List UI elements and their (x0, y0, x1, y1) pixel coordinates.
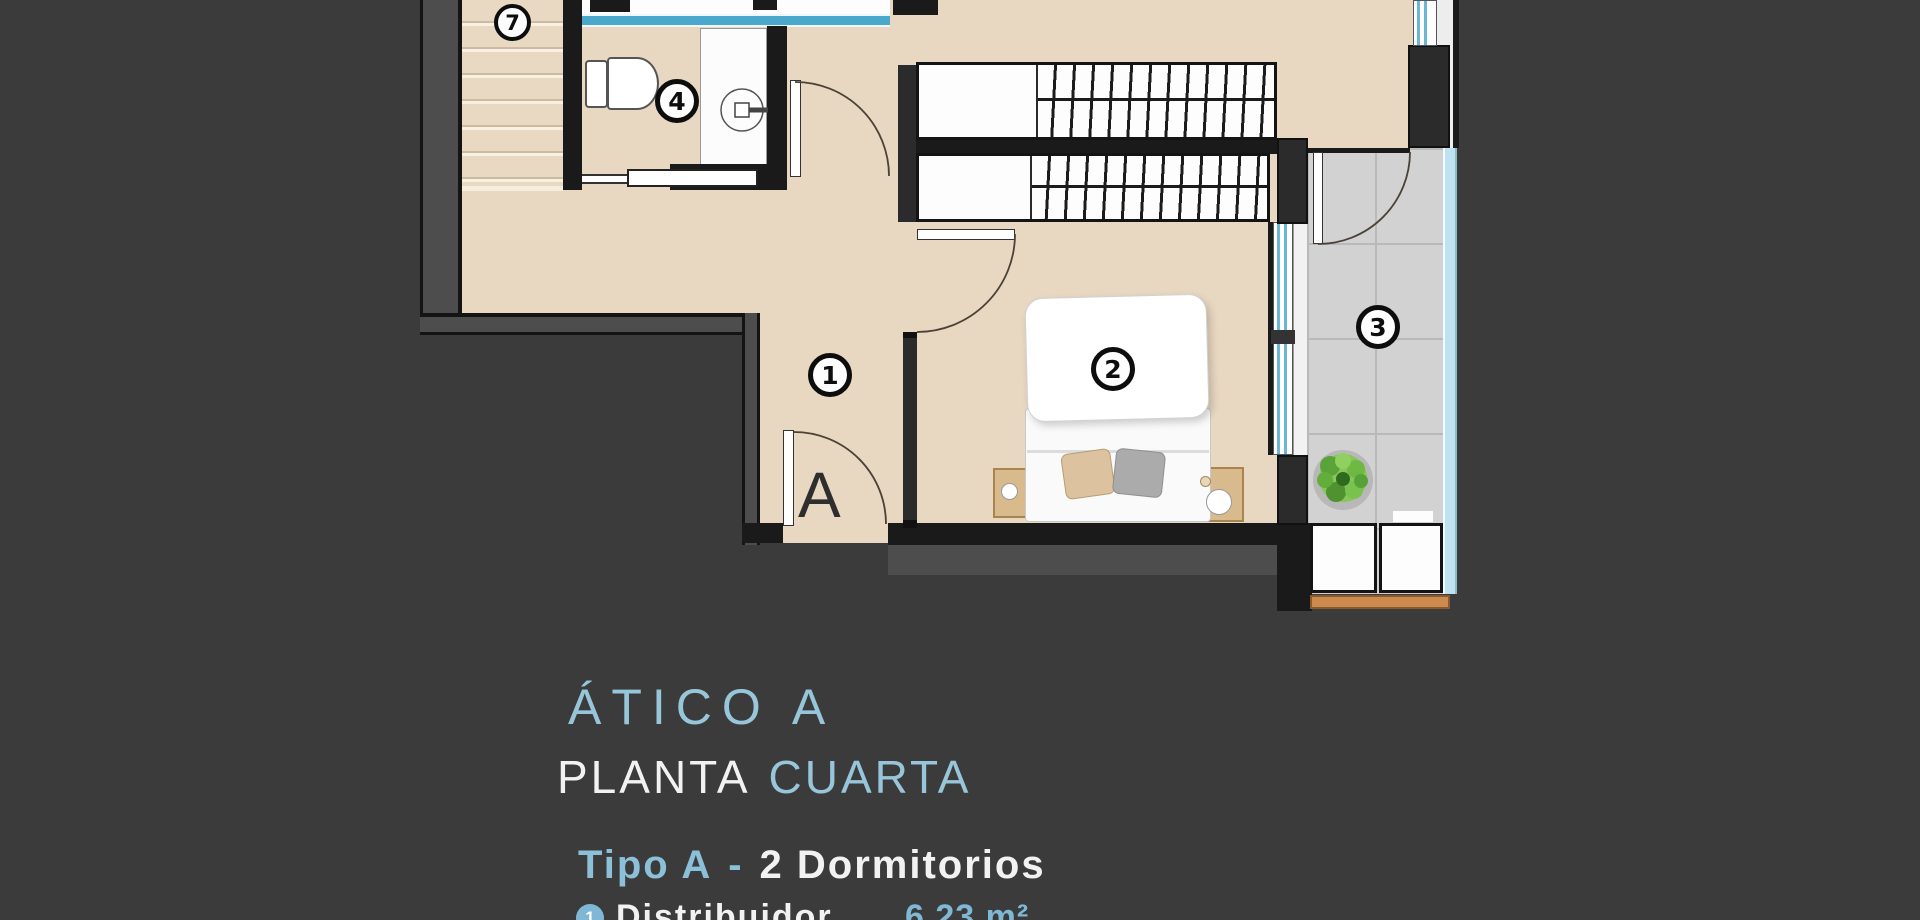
wardrobe-row-top (916, 62, 1277, 140)
legend-number-badge: 1 (576, 904, 604, 920)
wardrobe-left-pillar (898, 65, 916, 222)
floor-gap-below-wall (563, 188, 582, 315)
room-marker-number: 3 (1369, 313, 1386, 342)
page-title-text: ÁTICO A (568, 679, 835, 735)
type-label: Tipo A (578, 843, 712, 887)
terrace-top-pillar (1408, 45, 1450, 148)
floor-plan-page: 7 4 1 2 3 A ÁTICO A PLANTACUARTA Tipo A-… (0, 0, 1920, 920)
top-right-window (1413, 0, 1437, 46)
nightstand-cup (1200, 476, 1211, 487)
outer-wall-left (420, 0, 462, 335)
terrace-cabinet-left (1310, 523, 1377, 593)
bathroom-door-leaf (790, 80, 801, 177)
type-line: Tipo A-2 Dormitorios (578, 843, 1046, 888)
room-marker-number: 2 (1104, 355, 1121, 384)
bedroom-window-mullion (1271, 330, 1295, 344)
bottom-wall-outer-face (888, 545, 1308, 575)
outer-wall-bottom-left (420, 313, 760, 335)
bottom-wall-entry-left (742, 523, 783, 543)
toilet-cistern (585, 60, 608, 108)
room-marker-number: 7 (505, 11, 520, 35)
wardrobe-shelf (919, 156, 1032, 219)
room-marker-number: 4 (668, 87, 685, 116)
nightstand-lamp-right (1206, 489, 1232, 515)
terrace-threshold (1308, 148, 1410, 153)
terrace-notch (1393, 511, 1433, 522)
legend-row: 1 Distribuidor (576, 898, 833, 920)
bottom-wall-main (888, 523, 1308, 545)
terrace-alcove-floor (1273, 0, 1413, 148)
accent-pillow-gray (1112, 448, 1167, 499)
terrace-corner-wall (1277, 523, 1312, 611)
shower-tray (700, 28, 767, 168)
stairs-landing-edge (462, 186, 563, 191)
wardrobe-row-bottom (916, 153, 1270, 222)
wardrobe-hanger-rail (1038, 65, 1274, 137)
wall-stub-top-3 (893, 0, 938, 15)
room-marker-number: 1 (821, 361, 838, 390)
room-marker-7: 7 (494, 4, 531, 41)
wall-stub-top-2 (753, 0, 777, 10)
page-title: ÁTICO A (568, 678, 835, 736)
hall-bedroom-divider-wall (903, 332, 917, 528)
subtitle-word-cuarta: CUARTA (769, 751, 972, 803)
terrace-wood-strip (1310, 595, 1450, 609)
nightstand-lamp-left (1001, 483, 1018, 500)
wardrobe-separator-wall (898, 140, 1308, 154)
outer-wall-lower-left (742, 313, 760, 545)
stairs-right-wall (563, 0, 582, 190)
legend-label: Distribuidor (616, 898, 833, 920)
wardrobe-shelf (919, 65, 1038, 137)
window-bottom-pillar (1277, 455, 1308, 525)
toilet-bowl (607, 57, 659, 110)
accent-pillow-beige (1060, 448, 1116, 501)
stairs-landing (462, 190, 563, 315)
room-marker-4: 4 (655, 79, 699, 123)
window-top-pillar (1277, 138, 1308, 224)
bedroom-window-sill (1293, 222, 1307, 455)
bathroom-right-wall (767, 26, 787, 186)
legend-number: 1 (585, 908, 594, 920)
terrace-cabinet-right (1379, 523, 1443, 593)
terrace-door-leaf (1313, 152, 1323, 244)
entry-door-leaf (783, 430, 794, 526)
page-subtitle: PLANTACUARTA (557, 750, 971, 804)
wardrobe-hanger-rail (1032, 156, 1267, 219)
type-bedrooms: 2 Dormitorios (760, 843, 1046, 887)
entrance-label: A (798, 458, 841, 532)
legend-value: 6.23 m² (905, 898, 1029, 920)
subtitle-word-planta: PLANTA (557, 751, 751, 803)
type-dash: - (728, 843, 743, 887)
wall-stub-top-1 (590, 0, 630, 12)
room-marker-3: 3 (1356, 305, 1400, 349)
room-marker-2: 2 (1091, 347, 1135, 391)
room-marker-1: 1 (808, 353, 852, 397)
sink-basin (627, 169, 758, 187)
bedroom-door-leaf (917, 229, 1015, 240)
bath-glass-screen (578, 14, 890, 27)
terrace-glass-railing (1443, 148, 1457, 594)
